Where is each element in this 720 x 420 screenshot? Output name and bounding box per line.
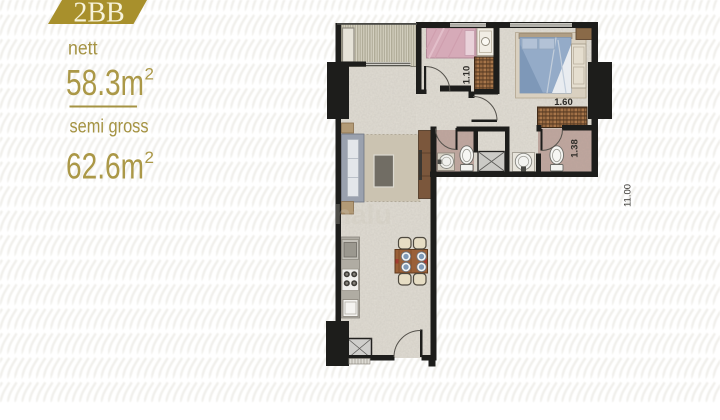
svg-text:11.00: 11.00 (623, 184, 634, 207)
svg-text:2: 2 (145, 65, 154, 84)
svg-text:58.3m: 58.3m (66, 62, 144, 103)
svg-text:nett: nett (68, 39, 98, 60)
svg-text:1.60: 1.60 (554, 97, 573, 108)
svg-text:semi gross: semi gross (70, 117, 149, 138)
svg-text:2BB: 2BB (73, 0, 124, 29)
svg-text:1.10: 1.10 (462, 66, 473, 85)
svg-text:halu: halu (334, 199, 392, 230)
svg-text:62.6m: 62.6m (66, 146, 144, 187)
svg-text:2: 2 (145, 148, 154, 167)
svg-text:1.38: 1.38 (570, 139, 581, 158)
